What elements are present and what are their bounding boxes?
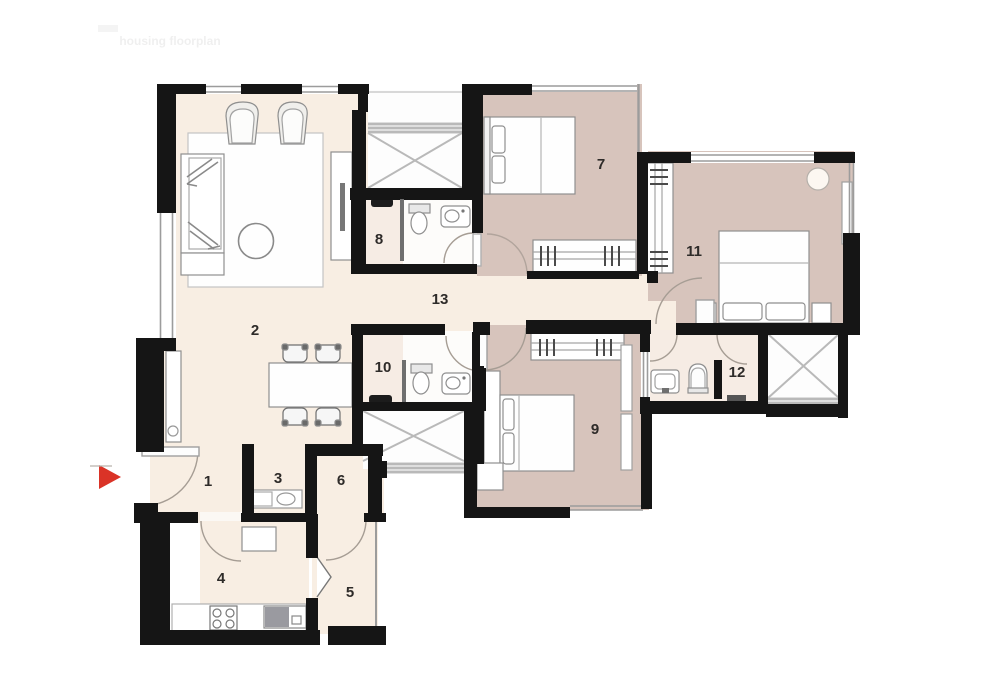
svg-text:4: 4 xyxy=(217,570,226,587)
svg-text:13: 13 xyxy=(432,291,449,308)
svg-text:7: 7 xyxy=(597,156,605,173)
svg-text:9: 9 xyxy=(591,421,599,438)
svg-text:10: 10 xyxy=(375,359,392,376)
svg-text:6: 6 xyxy=(337,472,345,489)
svg-text:11: 11 xyxy=(686,243,702,260)
svg-text:12: 12 xyxy=(729,364,746,381)
svg-text:5: 5 xyxy=(346,584,354,601)
svg-text:2: 2 xyxy=(251,322,259,339)
svg-text:1: 1 xyxy=(204,473,212,490)
svg-text:housing floorplan: housing floorplan xyxy=(119,34,220,48)
svg-text:3: 3 xyxy=(274,470,282,487)
svg-text:8: 8 xyxy=(375,231,383,248)
